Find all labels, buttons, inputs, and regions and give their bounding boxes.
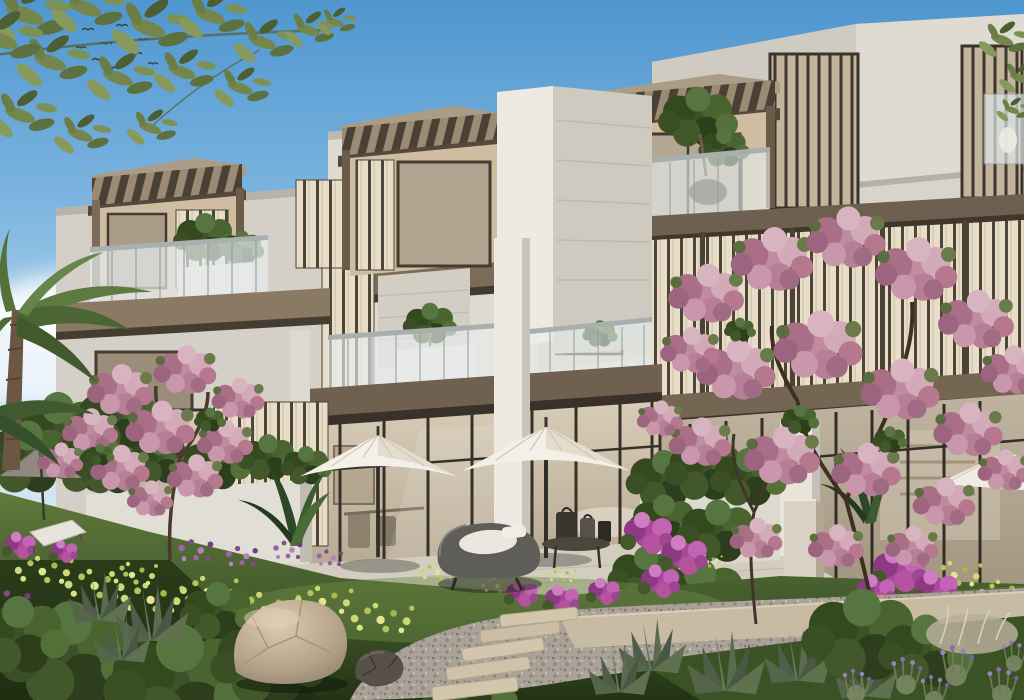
dining-chair — [348, 512, 370, 548]
architectural-render — [0, 0, 1024, 700]
canopy-middle-glass — [398, 162, 490, 266]
rock-large — [234, 600, 348, 693]
sculpture — [999, 127, 1017, 153]
louvre-panel-mid-upper — [296, 180, 350, 268]
daybed — [438, 523, 543, 593]
lantern — [598, 521, 611, 542]
scene-canvas — [0, 0, 1024, 700]
canopy-middle — [338, 106, 508, 276]
